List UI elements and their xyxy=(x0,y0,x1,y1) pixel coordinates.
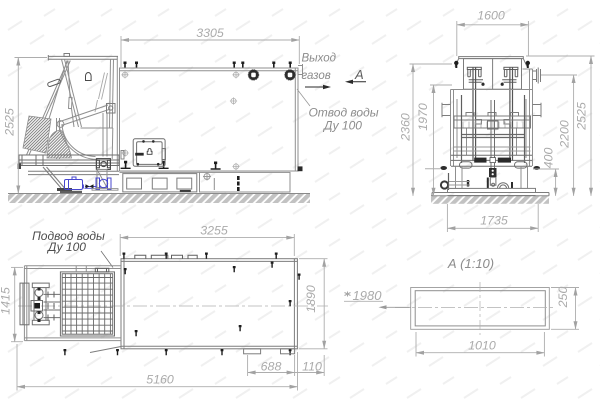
svg-text:5160: 5160 xyxy=(146,373,174,387)
svg-text:250: 250 xyxy=(556,287,570,309)
svg-text:Ду 100: Ду 100 xyxy=(46,240,86,254)
svg-text:1970: 1970 xyxy=(416,103,430,131)
svg-text:газов: газов xyxy=(302,70,331,82)
svg-text:2360: 2360 xyxy=(399,113,413,142)
svg-text:Ду 100: Ду 100 xyxy=(322,119,362,133)
svg-text:Отвод воды: Отвод воды xyxy=(308,106,378,120)
svg-text:3255: 3255 xyxy=(200,224,228,238)
svg-text:1600: 1600 xyxy=(477,9,505,23)
svg-text:2200: 2200 xyxy=(558,120,572,149)
svg-text:Выход: Выход xyxy=(302,53,337,65)
svg-text:110: 110 xyxy=(302,359,322,373)
svg-text:400: 400 xyxy=(542,148,556,169)
svg-text:2525: 2525 xyxy=(575,102,589,131)
svg-text:3305: 3305 xyxy=(196,26,224,40)
svg-text:1415: 1415 xyxy=(0,287,13,315)
svg-text:688: 688 xyxy=(261,359,282,373)
svg-text:1980: 1980 xyxy=(353,288,383,303)
svg-text:2525: 2525 xyxy=(3,108,17,137)
svg-text:1735: 1735 xyxy=(480,214,508,228)
svg-text:1890: 1890 xyxy=(304,285,318,313)
svg-text:1010: 1010 xyxy=(468,339,496,353)
svg-text:А (1:10): А (1:10) xyxy=(447,256,494,271)
svg-text:А: А xyxy=(354,67,364,82)
